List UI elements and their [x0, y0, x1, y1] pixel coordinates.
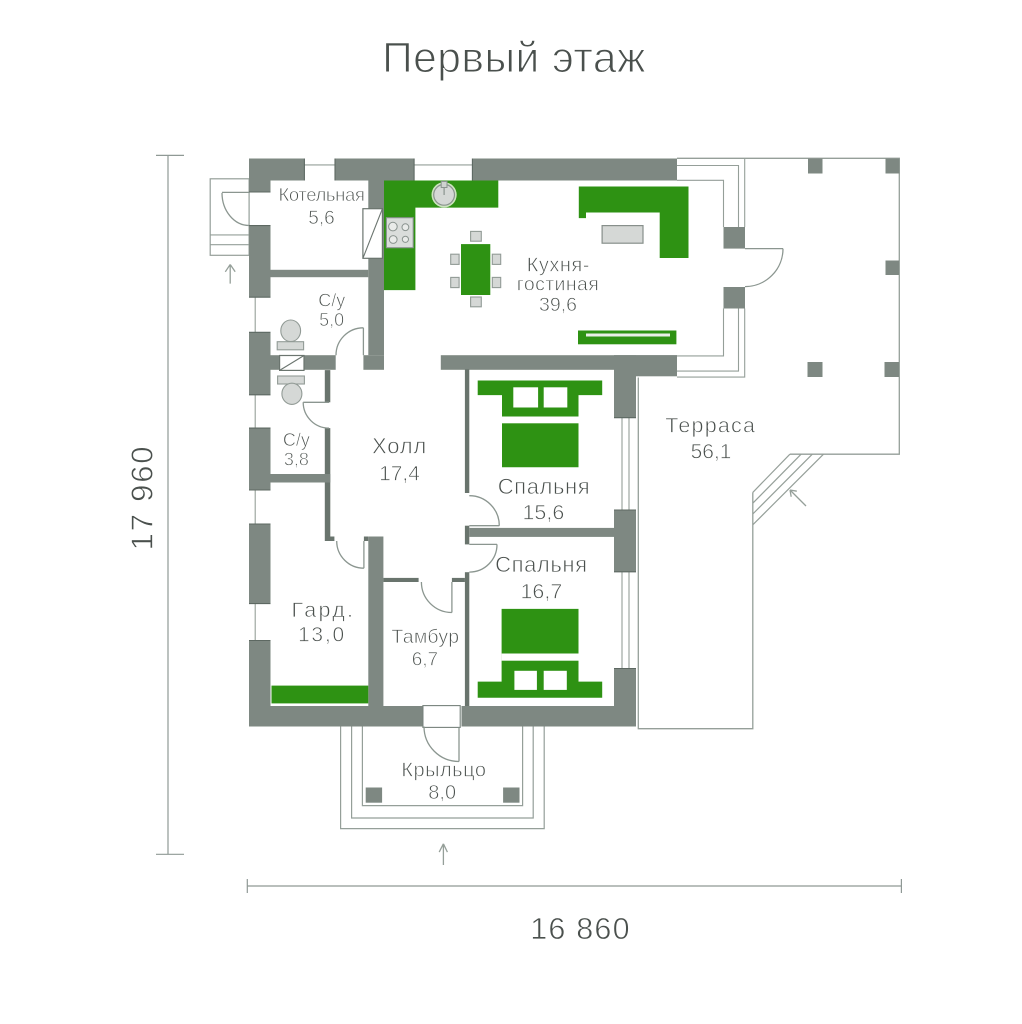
svg-text:С/у: С/у [283, 430, 310, 450]
svg-text:3,8: 3,8 [284, 450, 309, 470]
svg-text:Спальня: Спальня [498, 474, 591, 499]
svg-text:56,1: 56,1 [691, 441, 732, 464]
svg-text:8,0: 8,0 [428, 782, 456, 804]
svg-text:17,4: 17,4 [379, 463, 420, 486]
svg-text:5,0: 5,0 [319, 310, 344, 330]
svg-text:Крыльцо: Крыльцо [401, 760, 486, 782]
svg-text:16,7: 16,7 [520, 580, 562, 604]
svg-text:гостиная: гостиная [517, 274, 599, 296]
svg-text:С/у: С/у [318, 290, 345, 310]
svg-text:Первый этаж: Первый этаж [382, 35, 646, 82]
svg-text:Терраса: Терраса [665, 413, 756, 437]
svg-text:15,6: 15,6 [522, 500, 564, 524]
svg-text:16 860: 16 860 [530, 912, 631, 946]
svg-text:Гард.: Гард. [291, 598, 355, 622]
svg-text:Холл: Холл [372, 434, 427, 459]
svg-text:Тамбур: Тамбур [391, 626, 459, 648]
svg-text:39,6: 39,6 [539, 294, 577, 316]
svg-text:6,7: 6,7 [412, 650, 438, 671]
svg-text:13,0: 13,0 [298, 624, 346, 647]
svg-text:Спальня: Спальня [495, 552, 588, 577]
svg-text:Котельная: Котельная [279, 184, 365, 205]
svg-text:5,6: 5,6 [308, 208, 334, 229]
svg-text:17 960: 17 960 [125, 445, 160, 551]
